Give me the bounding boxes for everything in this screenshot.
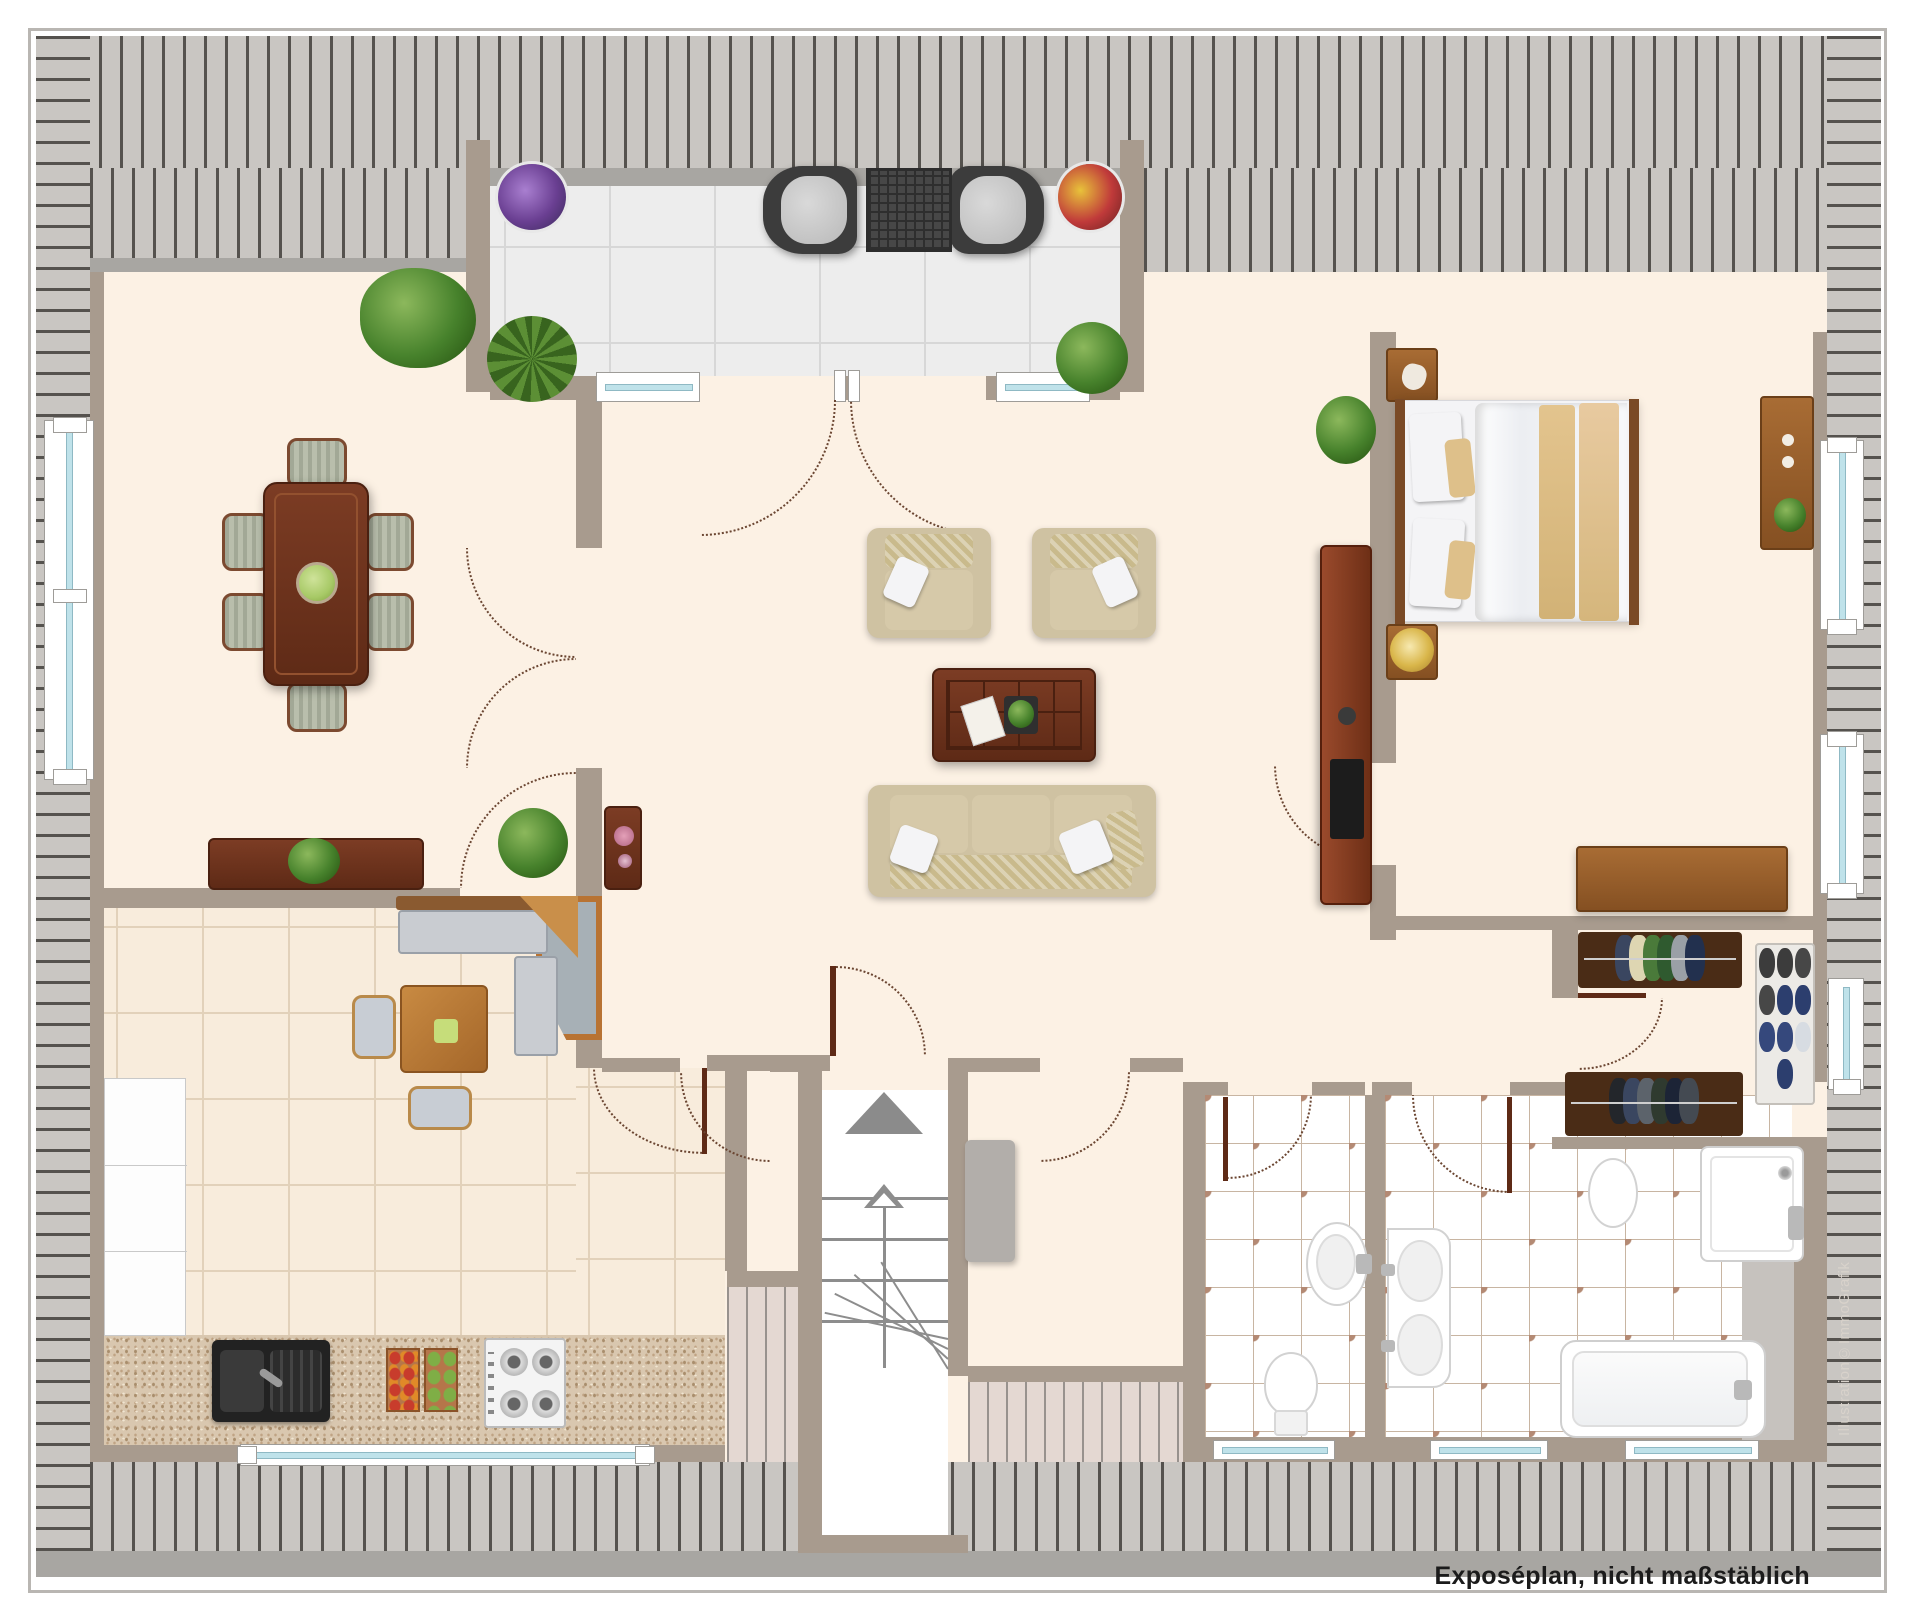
bed-runner: [1539, 405, 1575, 619]
dining-chair: [366, 513, 414, 571]
armchair: [1032, 528, 1156, 638]
clothes-rack: [1578, 932, 1742, 988]
window: [1213, 1440, 1335, 1460]
terrace-door-post: [848, 370, 860, 402]
door-leaf: [830, 966, 836, 1056]
dining-chair: [366, 593, 414, 651]
potted-plant: [498, 808, 568, 878]
door-leaf: [1578, 993, 1646, 998]
bed-accent-pillow: [1444, 540, 1476, 600]
bath-north-wall-a: [1183, 1082, 1228, 1095]
potted-plant: [1056, 322, 1128, 394]
door-swing-arc: [836, 966, 926, 1056]
door-swing-arc: [1578, 998, 1663, 1070]
double-washbasin: [1387, 1228, 1451, 1388]
hall-south-stub-right: [968, 1366, 1183, 1382]
bath-north-wall-c: [1372, 1082, 1412, 1095]
door-leaf: [1507, 1097, 1512, 1193]
door-swing-arc: [466, 548, 576, 658]
door-leaf: [1223, 1097, 1228, 1181]
door-swing-arc: [1040, 1072, 1130, 1162]
corner-bench-seat: [398, 910, 548, 954]
bed-headboard: [1395, 399, 1405, 625]
fruit-bowl: [296, 562, 338, 604]
kitchen-sink: [212, 1340, 330, 1422]
toilet: [1262, 1352, 1320, 1438]
door-swing-arc: [466, 658, 576, 768]
monstera-plant: [360, 268, 476, 368]
flower-pot-red: [1058, 164, 1122, 230]
bed-footboard: [1629, 399, 1639, 625]
door-swing-arc: [1228, 1095, 1312, 1179]
shoe-rack: [1755, 943, 1815, 1105]
dresser: [1760, 396, 1814, 550]
stairwell-wall-left: [798, 1058, 822, 1535]
yucca-plant: [487, 316, 577, 402]
window: [1820, 440, 1864, 630]
dressing-west-wall: [1552, 930, 1578, 998]
terrace-chair: [950, 166, 1044, 254]
table-lamp: [1390, 628, 1434, 672]
coffee-table: [932, 668, 1096, 762]
dining-living-wall-lower: [576, 768, 602, 888]
living-south-wall-d: [1130, 1058, 1183, 1072]
caption: Exposéplan, nicht maßstäblich: [1435, 1562, 1810, 1591]
shower: [1700, 1146, 1804, 1262]
armchair: [867, 528, 991, 638]
tv-lowboard: [1320, 545, 1372, 905]
hall-south-stub-left: [727, 1271, 798, 1287]
window: [1820, 734, 1864, 894]
wc-west-wall: [1183, 1095, 1205, 1437]
double-bed: [1396, 400, 1636, 622]
toilet: [1588, 1158, 1638, 1228]
terrace-door-post: [834, 370, 846, 402]
roof-band-top: [36, 36, 1881, 168]
bathtub: [1560, 1340, 1766, 1438]
bed-accent-pillow: [1444, 438, 1476, 498]
terrace-door-opening-left: [700, 376, 836, 400]
bed-runner: [1579, 403, 1619, 621]
window: [596, 372, 700, 402]
floor-plan: Exposéplan, nicht maßstäblich Illustrati…: [0, 0, 1917, 1623]
kitchen-chair: [408, 1086, 472, 1130]
corner-bench-seat: [514, 956, 558, 1056]
clothes-rack: [1565, 1072, 1743, 1136]
bath-north-wall-b: [1312, 1082, 1365, 1095]
entry-wardrobe: [965, 1140, 1015, 1262]
terrace-chair: [763, 166, 857, 254]
dining-living-wall-upper: [576, 392, 602, 548]
door-swing-arc: [1412, 1095, 1510, 1193]
window: [44, 420, 94, 780]
bedroom-door-opening: [1370, 763, 1396, 865]
bedroom-south-wall: [1396, 916, 1827, 930]
kitchen-chair: [352, 995, 396, 1059]
vegetable-crates: [386, 1348, 458, 1412]
kitchen-table: [400, 985, 488, 1073]
door-swing-arc: [700, 400, 836, 536]
potted-plant: [1316, 396, 1376, 464]
roof-low-left-of-stairs: [727, 1287, 798, 1462]
flower-pot-purple: [498, 164, 566, 230]
gas-stove: [484, 1338, 566, 1428]
living-south-wall-b: [770, 1058, 798, 1072]
window: [1430, 1440, 1548, 1460]
nightstand: [1386, 348, 1438, 402]
stair-center-rail: [883, 1200, 886, 1368]
roof-band-left: [36, 36, 90, 1551]
dining-chair: [287, 682, 347, 732]
living-south-wall-c: [968, 1058, 1040, 1072]
potted-plant: [288, 838, 340, 884]
watermark: Illustration©ImmoGrafik: [1836, 1266, 1853, 1436]
sofa: [868, 785, 1156, 897]
window: [240, 1444, 650, 1466]
terrace-table: [866, 168, 952, 252]
roof-low-right-of-stairs: [968, 1382, 1183, 1462]
window: [1828, 978, 1864, 1090]
stairwell-wall-bottom: [798, 1535, 968, 1553]
pedestal-sink: [1304, 1218, 1372, 1310]
door-swing-arc: [850, 400, 986, 536]
roof-block-top-left: [90, 168, 468, 258]
door-swing-arc: [680, 1072, 770, 1162]
flower-table: [604, 806, 642, 890]
window: [1625, 1440, 1759, 1460]
sideboard: [1576, 846, 1788, 912]
terrace-door-opening-right: [858, 376, 986, 400]
dining-chair: [287, 438, 347, 488]
kitchen-cabinets: [104, 1078, 186, 1336]
